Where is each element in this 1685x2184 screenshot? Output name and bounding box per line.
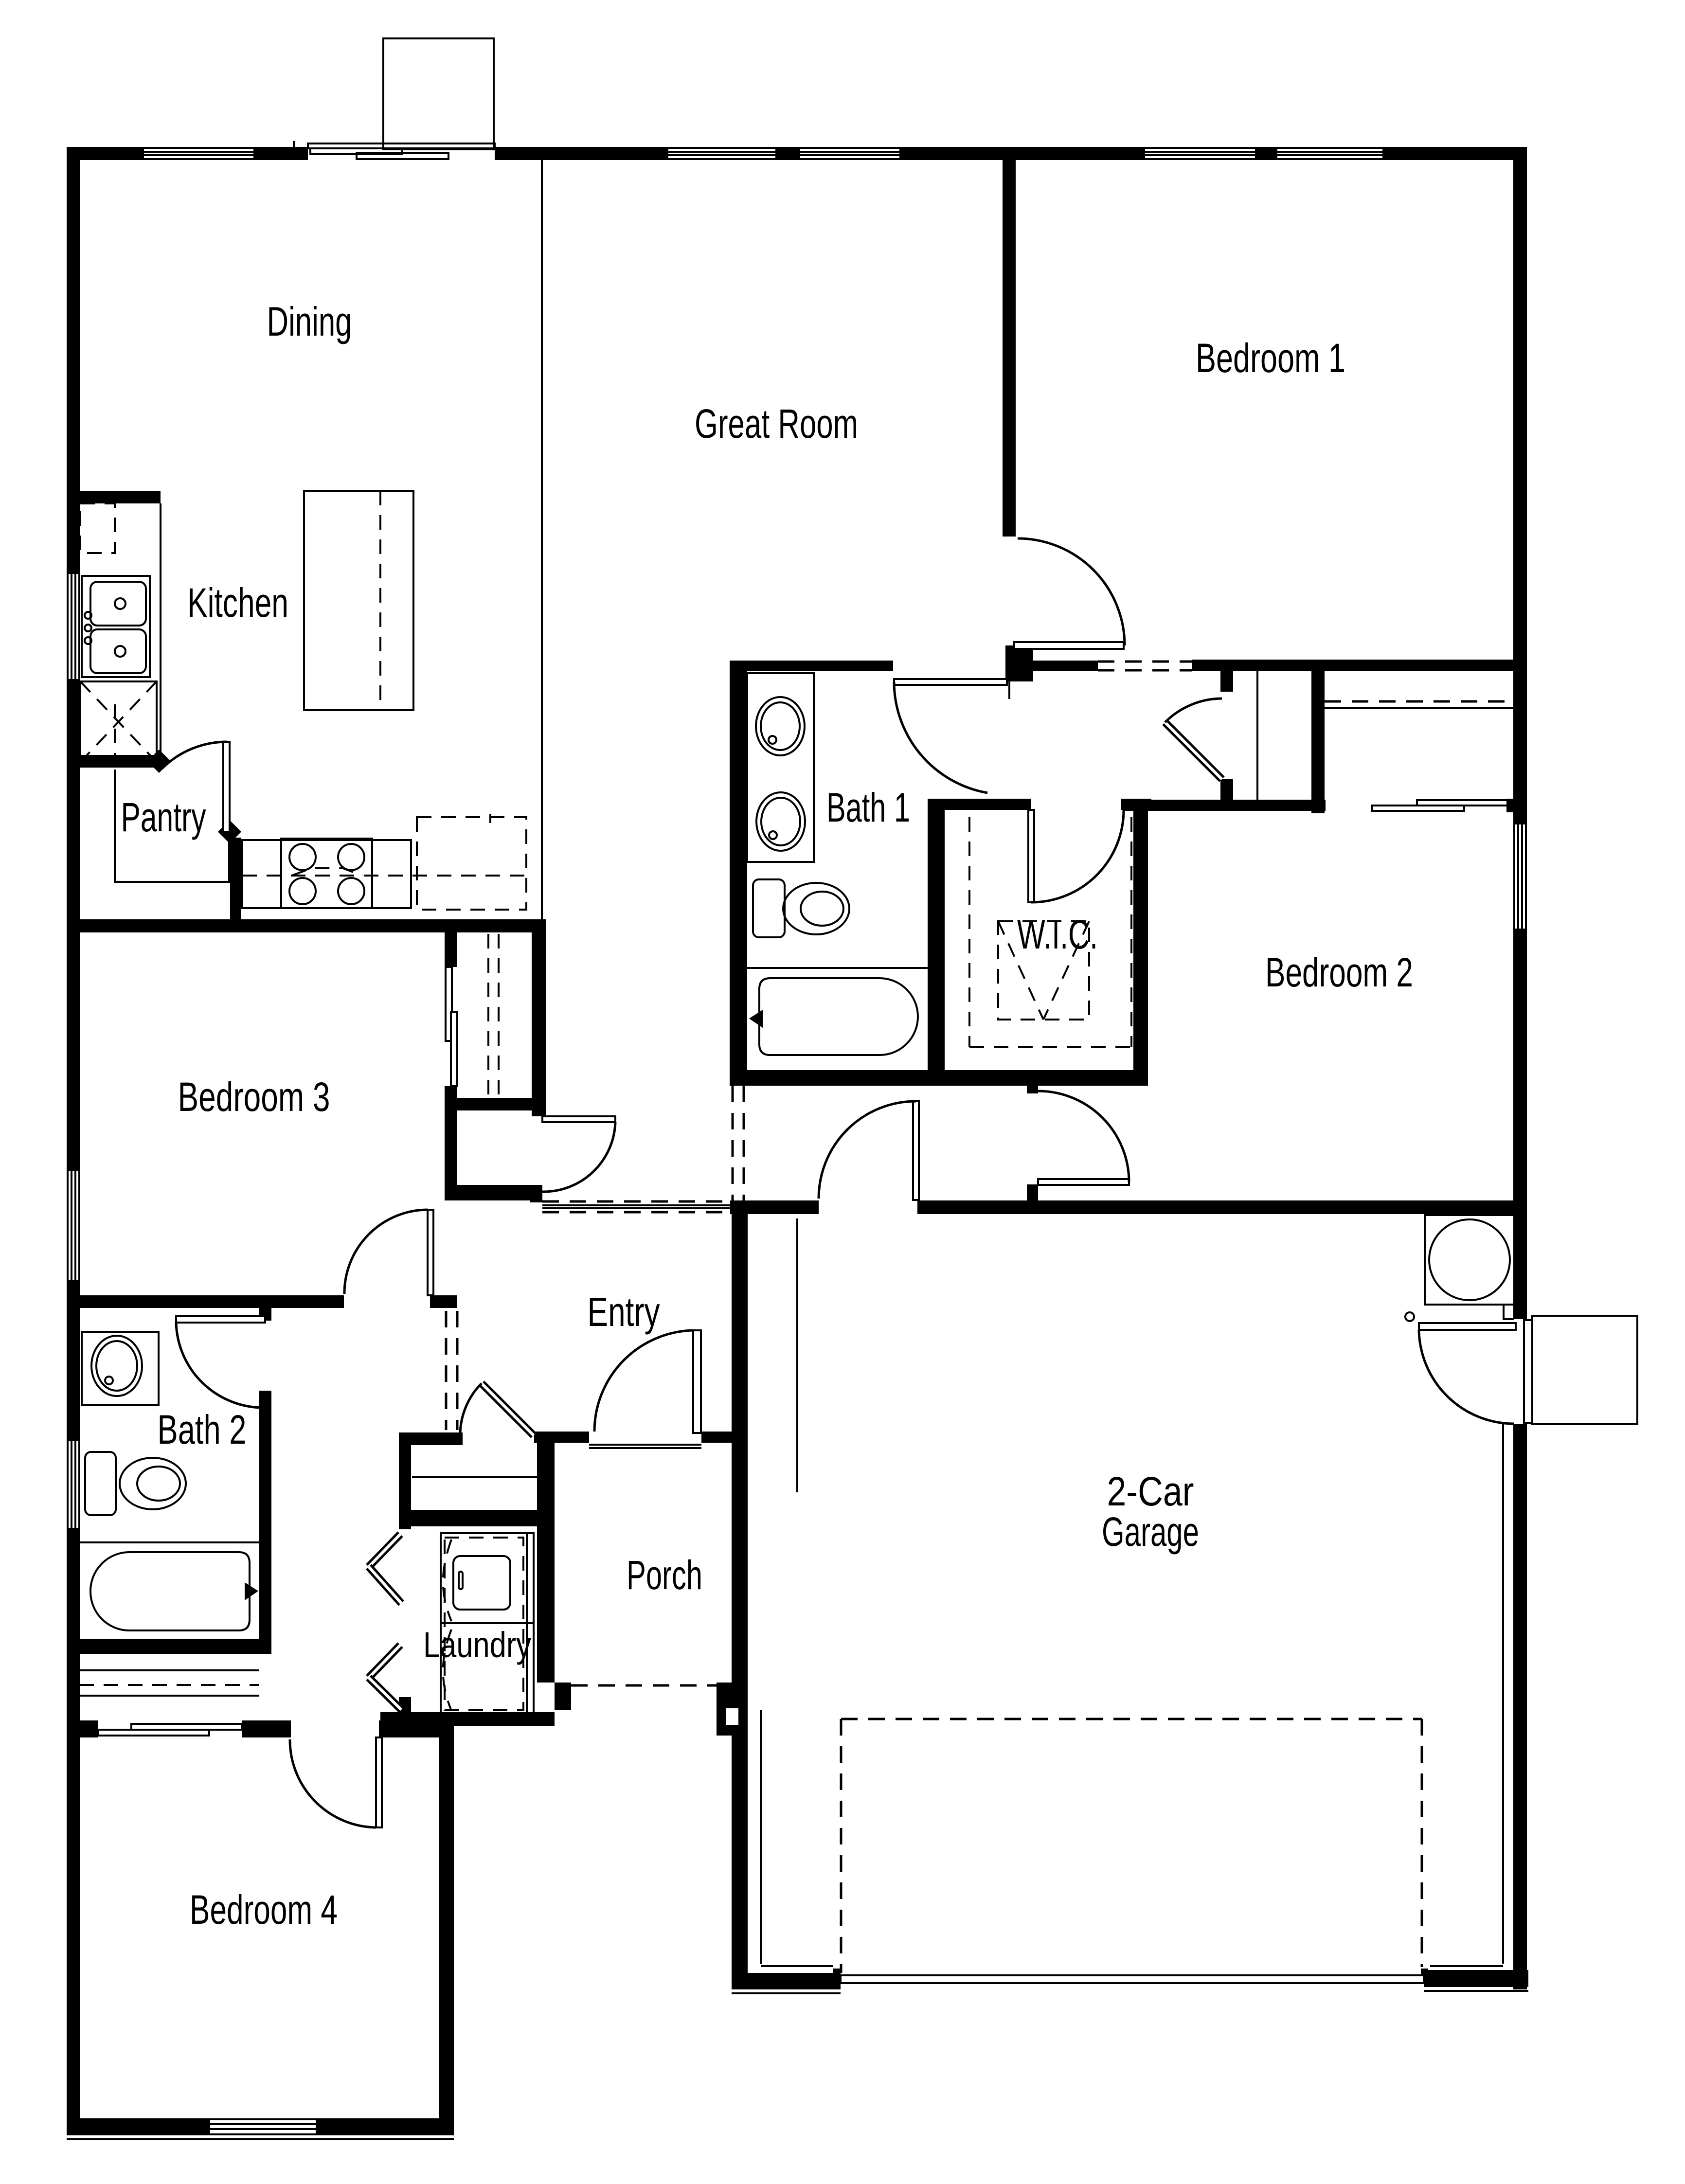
svg-text:Bath 1: Bath 1 bbox=[826, 785, 910, 830]
svg-text:Great Room: Great Room bbox=[695, 401, 858, 447]
svg-text:Kitchen: Kitchen bbox=[187, 580, 288, 626]
svg-text:Pantry: Pantry bbox=[121, 794, 206, 840]
svg-text:Bedroom 2: Bedroom 2 bbox=[1265, 949, 1413, 995]
svg-text:Dining: Dining bbox=[267, 299, 352, 344]
svg-text:Bedroom 4: Bedroom 4 bbox=[190, 1887, 338, 1933]
svg-text:Bath 2: Bath 2 bbox=[158, 1407, 247, 1452]
svg-text:2-Car: 2-Car bbox=[1107, 1468, 1194, 1514]
svg-text:Garage: Garage bbox=[1102, 1509, 1199, 1555]
svg-text:Porch: Porch bbox=[627, 1552, 702, 1598]
svg-text:Laundry: Laundry bbox=[423, 1625, 531, 1665]
svg-text:Entry: Entry bbox=[588, 1289, 660, 1335]
svg-text:Bedroom 1: Bedroom 1 bbox=[1196, 335, 1345, 381]
svg-text:W.I.C.: W.I.C. bbox=[1017, 912, 1098, 957]
svg-text:Bedroom 3: Bedroom 3 bbox=[178, 1074, 330, 1120]
